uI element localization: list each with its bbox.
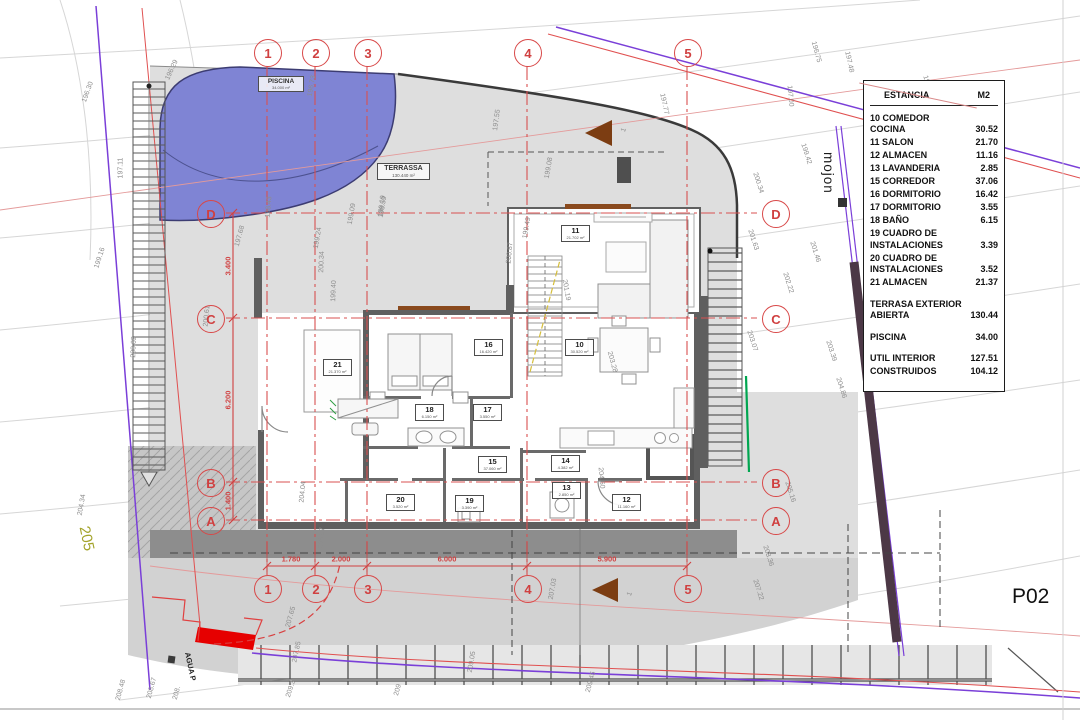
piscina-label-box: PISCINA 34.000 m² [258,76,304,92]
legend-row: 13 LAVANDERIA2.85 [870,163,998,175]
legend-row: UTIL INTERIOR127.51 [870,353,998,365]
legend-row: CONSTRUIDOS104.12 [870,366,998,378]
dim-B-A: 1.400 [224,492,233,511]
elevation-label: 197.11 [118,158,125,179]
room-label-18: 186.150 m² [415,404,444,421]
grid-bubble-2-top: 2 [302,39,330,67]
grid-bubble-C-left: C [197,305,225,333]
grid-bubble-D-left: D [197,200,225,228]
legend-row: TERRASA EXTERIOR ABIERTA130.44 [870,299,998,322]
legend-row: 12 ALMACEN11.16 [870,150,998,162]
legend-rows: 10 COMEDOR COCINA30.5211 SALON21.7012 AL… [870,113,998,378]
grid-bubble-5-top: 5 [674,39,702,67]
legend-header: ESTANCIA M2 [870,88,998,106]
legend-row: PISCINA34.00 [870,332,998,344]
area-legend-table: ESTANCIA M2 10 COMEDOR COCINA30.5211 SAL… [863,80,1005,392]
dim-C-B: 6.200 [224,391,233,410]
elevation-label: 199.40 [330,280,338,302]
room-label-21: 2121.370 m² [323,359,352,376]
room-label-11: 1121.702 m² [561,225,590,242]
dim-1-2: 1.780 [282,555,301,564]
legend-row: 18 BAÑO6.15 [870,215,998,227]
legend-row: 10 COMEDOR COCINA30.52 [870,113,998,136]
mojon-label: mojon [821,152,836,244]
legend-row: 17 DORMITORIO3.55 [870,202,998,214]
legend-unit: M2 [977,90,990,102]
sheet-number: P02 [1012,585,1049,609]
legend-row: 11 SALON21.70 [870,137,998,149]
grid-bubble-2-bottom: 2 [302,575,330,603]
elevation-label: 200.34 [318,251,326,273]
retaining-wall-cells [238,645,1058,692]
grid-bubble-A-left: A [197,507,225,535]
room-label-20: 203.520 m² [386,494,415,511]
piscina-title: PISCINA [261,78,301,85]
room-label-12: 1211.160 m² [612,494,641,511]
grid-bubble-B-right: B [762,469,790,497]
interior-stairs [528,256,562,376]
grid-bubble-5-bottom: 5 [674,575,702,603]
agua-marker [168,656,176,664]
legend-row: 21 ALMACEN21.37 [870,277,998,289]
floor-plan-sheet: ESTANCIA M2 10 COMEDOR COCINA30.5211 SAL… [0,0,1080,720]
piscina-area: 34.000 m² [261,85,301,90]
room-label-14: 144.382 m² [551,455,580,472]
site-stairs-left [133,82,165,486]
room-label-13: 132.850 m² [552,482,581,499]
room-label-16: 1616.420 m² [474,339,503,356]
terrassa-title: TERRASSA [380,165,427,173]
grid-bubble-A-right: A [762,507,790,535]
legend-row: 16 DORMITORIO16.42 [870,189,998,201]
dim-2-3: 2.000 [332,555,351,564]
grid-bubble-3-bottom: 3 [354,575,382,603]
grid-bubble-D-right: D [762,200,790,228]
terrassa-label-box: TERRASSA 130.440 m² [377,163,430,180]
terrassa-area: 130.440 m² [380,173,427,178]
room-label-17: 173.550 m² [473,404,502,421]
grid-bubble-C-right: C [762,305,790,333]
room-label-15: 1537.060 m² [478,456,507,473]
grid-bubble-B-left: B [197,469,225,497]
elevation-label: 200.02 [130,336,138,358]
dim-D-C: 3.400 [224,257,233,276]
grid-bubble-4-top: 4 [514,39,542,67]
grid-bubble-3-top: 3 [354,39,382,67]
dim-3-4: 6.000 [438,555,457,564]
legend-row: 20 CUADRO DE INSTALACIONES3.52 [870,253,998,276]
grid-bubble-4-bottom: 4 [514,575,542,603]
legend-row: 15 CORREDOR37.06 [870,176,998,188]
legend-row: 19 CUADRO DE INSTALACIONES3.39 [870,228,998,251]
room-label-10: 1030.520 m² [565,339,594,356]
grid-bubble-1-bottom: 1 [254,575,282,603]
dim-4-5: 5.900 [598,555,617,564]
grid-bubble-1-top: 1 [254,39,282,67]
room-label-19: 193.390 m² [455,495,484,512]
